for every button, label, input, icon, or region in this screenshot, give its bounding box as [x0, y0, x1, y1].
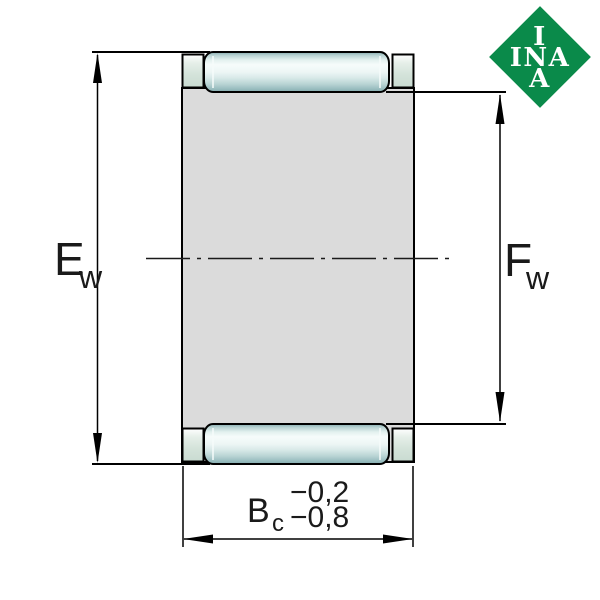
bc-tolerance-lower: −0,8 [290, 501, 349, 534]
bearing-section-drawing: E w F w B c −0,2 −0,8 I INA A [0, 0, 600, 600]
cage-rim-bottom-left [183, 429, 204, 462]
cage-rim-top-right [393, 55, 414, 88]
needle-roller-bottom [204, 424, 389, 464]
ew-label-subscript: w [78, 259, 103, 295]
bc-label: B [247, 492, 270, 530]
needle-roller-top [204, 52, 389, 92]
fw-label-subscript: w [525, 260, 550, 296]
cage-body [182, 88, 414, 462]
ina-logo-line-3: A [528, 64, 551, 94]
technical-drawing-canvas: E w F w B c −0,2 −0,8 I INA A [0, 0, 600, 600]
cage-rim-bottom-right [393, 429, 414, 462]
cage-rim-top-left [183, 55, 204, 88]
bc-label-subscript: c [272, 510, 284, 537]
